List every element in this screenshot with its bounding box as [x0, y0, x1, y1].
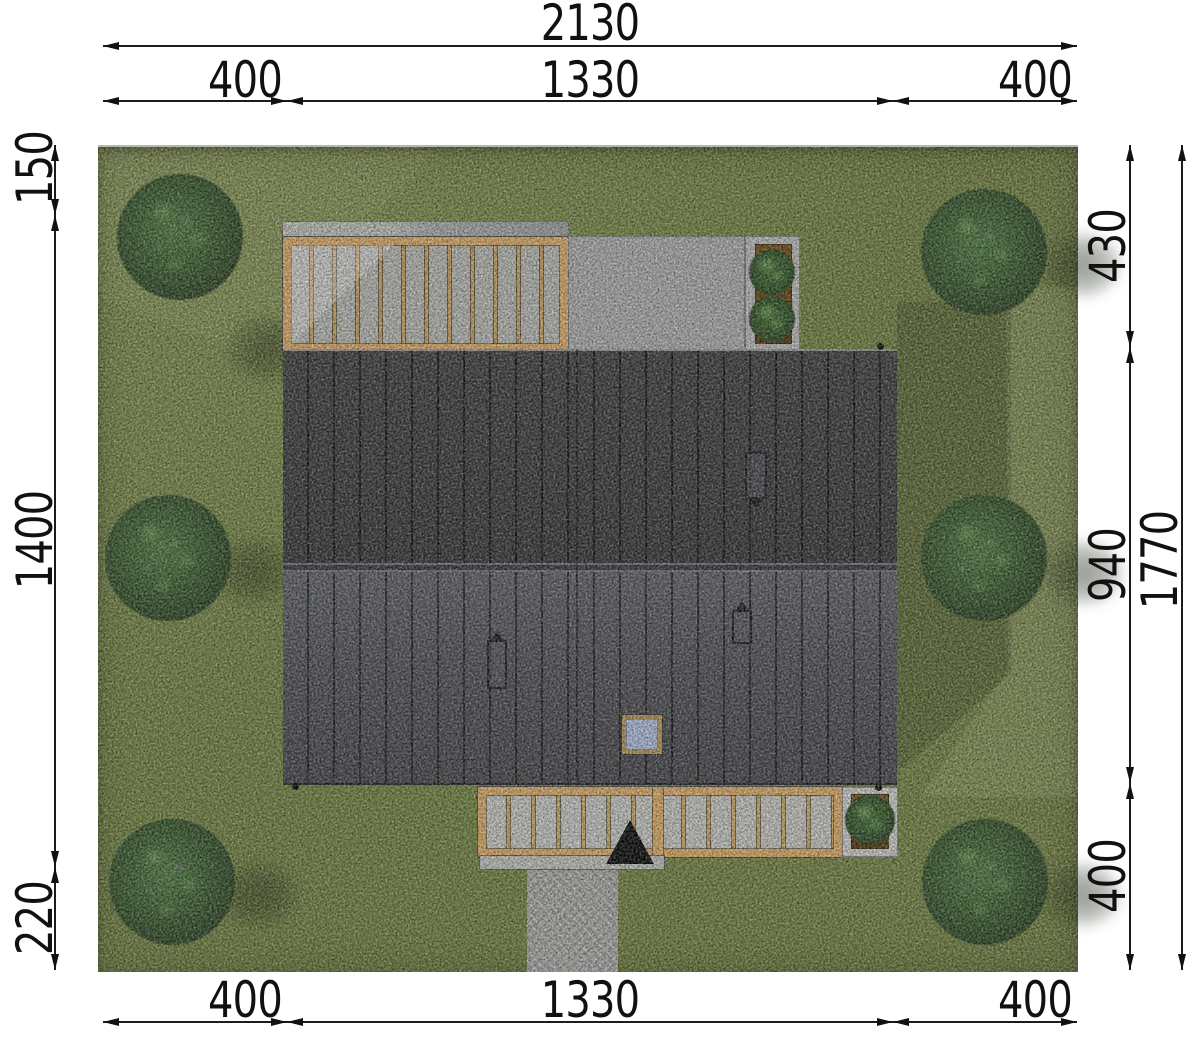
- dim-arrow: [893, 97, 909, 105]
- dim-line: [103, 100, 1077, 102]
- downspout-dot: [875, 784, 882, 791]
- terrace-top-band: [283, 222, 568, 237]
- roof-vent-arrow: [736, 601, 748, 610]
- roof-vent: [745, 452, 767, 499]
- dim-left-top: 150: [12, 48, 58, 288]
- dim-arrow: [877, 97, 893, 105]
- downspout-dot: [292, 783, 299, 790]
- dim-bottom-left: 400: [125, 977, 365, 1023]
- dim-arrow: [1178, 145, 1186, 161]
- dim-arrow: [893, 1018, 909, 1026]
- dim-top-right: 400: [915, 57, 1155, 103]
- roof-center-seam: [576, 349, 578, 785]
- dim-arrow: [1061, 97, 1077, 105]
- dim-arrow: [1178, 954, 1186, 970]
- dim-bottom-center: 1330: [470, 977, 710, 1023]
- dim-arrow: [103, 1018, 119, 1026]
- dim-arrow: [1061, 1018, 1077, 1026]
- dim-top-overall: 2130: [470, 0, 710, 46]
- roof-vent: [732, 610, 752, 644]
- dim-arrow: [103, 42, 119, 50]
- dim-arrow: [287, 1018, 303, 1026]
- walkway-path: [527, 870, 618, 972]
- patio: [568, 236, 745, 352]
- dim-top-center: 1330: [470, 57, 710, 103]
- planter-bush: [749, 296, 795, 342]
- roof-upper-slope: [283, 349, 897, 563]
- skylight: [622, 715, 662, 754]
- tree: [922, 819, 1048, 945]
- dim-arrow: [877, 1018, 893, 1026]
- planter-bush: [845, 795, 895, 845]
- dim-right-middle: 940: [1085, 445, 1131, 685]
- dim-top-left: 400: [125, 57, 365, 103]
- terrace-deck: [283, 237, 568, 352]
- dim-right-bottom: 400: [1085, 756, 1131, 996]
- planter-bush: [749, 249, 795, 295]
- tree: [109, 819, 235, 945]
- tree: [117, 174, 243, 300]
- dim-right-top: 430: [1085, 126, 1131, 366]
- plot-grass: [98, 145, 1078, 972]
- roof-vent-arrow: [750, 499, 762, 508]
- dim-arrow: [271, 97, 287, 105]
- roof-vent-arrow: [491, 631, 503, 640]
- entrance-marker-triangle: [606, 820, 654, 864]
- roof-lower-slope: [283, 572, 897, 785]
- dim-arrow: [287, 97, 303, 105]
- roof-vent: [487, 640, 507, 689]
- dim-arrow: [103, 97, 119, 105]
- dim-line: [103, 1021, 1077, 1023]
- dim-line: [103, 45, 1077, 47]
- tree: [921, 495, 1047, 621]
- dim-right-overall: 1770: [1137, 440, 1183, 680]
- dim-left-middle: 1400: [12, 420, 58, 660]
- dim-arrow: [1061, 42, 1077, 50]
- roof-ridge: [283, 563, 897, 572]
- tree: [921, 189, 1047, 315]
- site-plan-canvas: 2130 400 1330 400 400 1330 400 150 1400 …: [0, 0, 1197, 1050]
- downspout-dot: [877, 343, 884, 350]
- dim-left-bottom: 220: [12, 798, 58, 1038]
- dim-arrow: [271, 1018, 287, 1026]
- tree: [105, 495, 231, 621]
